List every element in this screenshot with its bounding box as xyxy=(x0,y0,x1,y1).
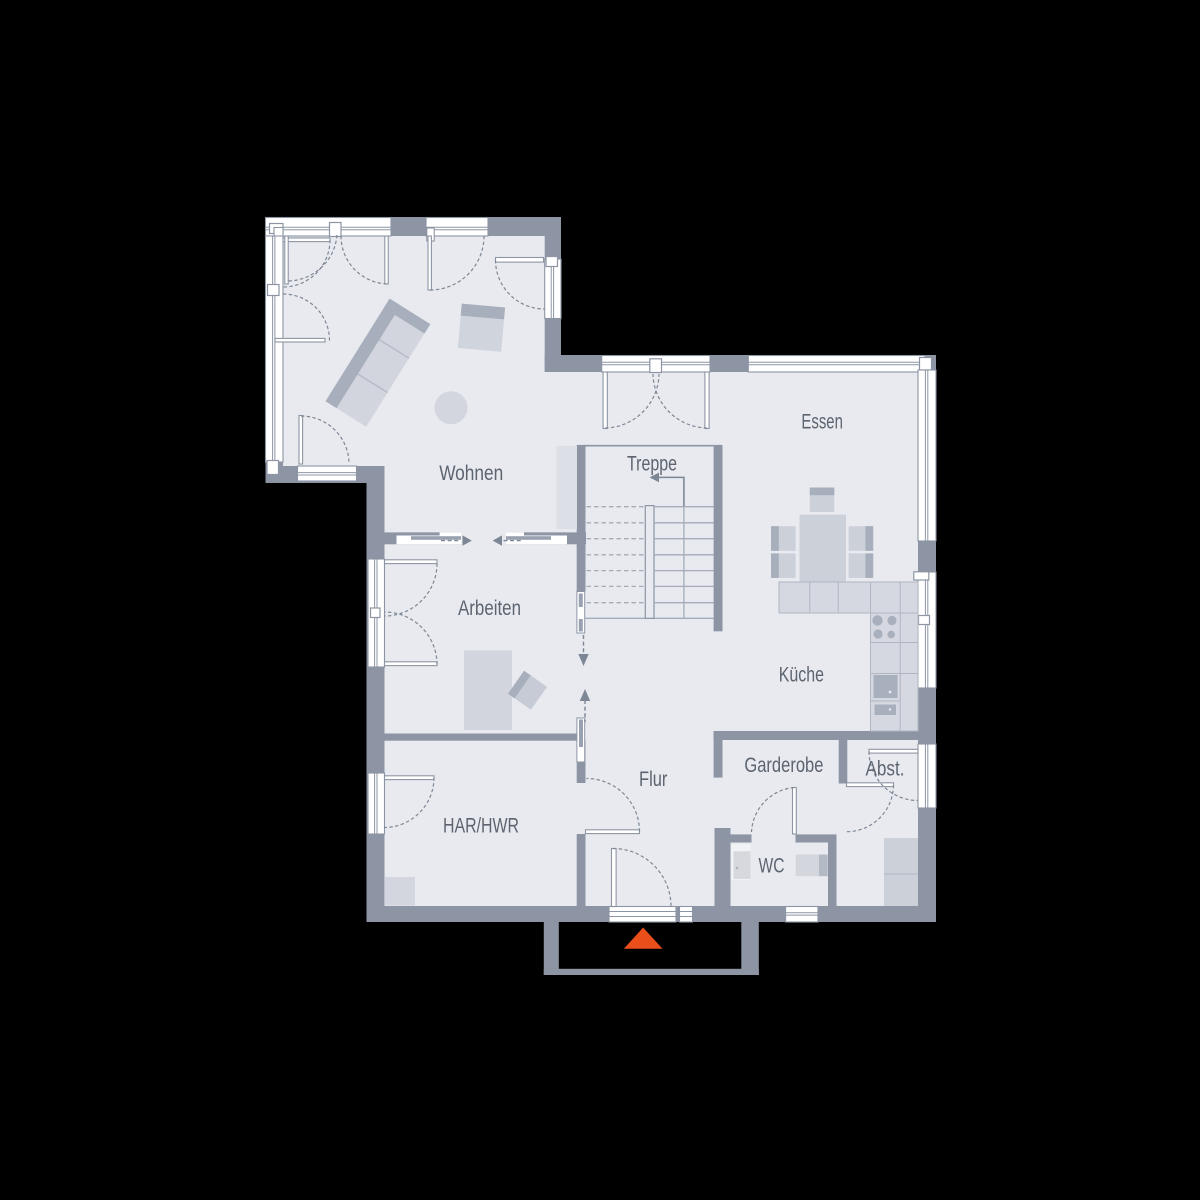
svg-text:Flur: Flur xyxy=(639,767,667,791)
svg-text:Essen: Essen xyxy=(801,409,843,433)
svg-text:Garderobe: Garderobe xyxy=(744,753,823,777)
svg-text:Arbeiten: Arbeiten xyxy=(458,596,521,620)
svg-text:Treppe: Treppe xyxy=(627,452,677,476)
svg-text:Wohnen: Wohnen xyxy=(439,461,503,485)
svg-text:HAR/HWR: HAR/HWR xyxy=(443,814,519,838)
svg-text:Abst.: Abst. xyxy=(866,757,905,781)
svg-text:WC: WC xyxy=(759,853,785,877)
svg-text:Küche: Küche xyxy=(779,663,824,687)
